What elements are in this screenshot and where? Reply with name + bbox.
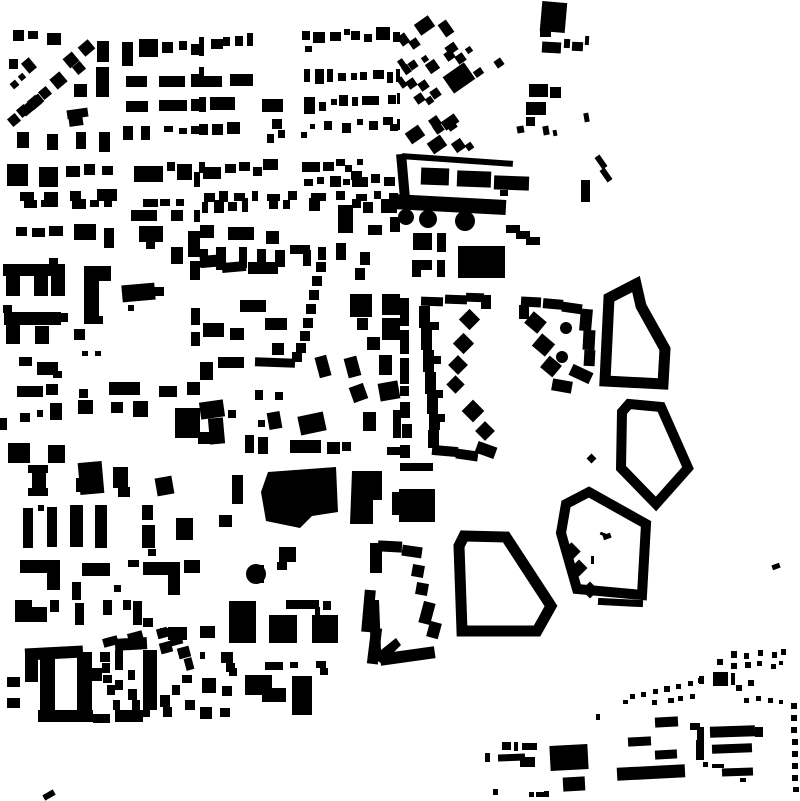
- building: [172, 685, 180, 695]
- building: [95, 351, 101, 356]
- building: [758, 650, 763, 656]
- building: [344, 29, 350, 35]
- building: [191, 99, 200, 111]
- building: [37, 410, 43, 417]
- building: [526, 237, 540, 245]
- building: [245, 435, 254, 453]
- building: [78, 39, 96, 57]
- building: [9, 59, 18, 69]
- building: [92, 668, 102, 681]
- building: [617, 764, 686, 781]
- building: [194, 210, 200, 222]
- building: [367, 337, 380, 350]
- building: [77, 652, 92, 710]
- building: [387, 72, 393, 83]
- courtyard-block-building: [605, 284, 665, 384]
- building: [20, 192, 34, 201]
- building: [75, 603, 84, 625]
- building: [200, 652, 205, 659]
- building: [542, 42, 562, 54]
- building: [457, 170, 492, 187]
- building: [419, 210, 437, 228]
- building: [352, 199, 361, 208]
- building: [462, 400, 485, 423]
- building: [221, 652, 233, 663]
- building: [360, 72, 367, 80]
- building: [544, 791, 549, 797]
- building: [302, 31, 310, 40]
- building: [744, 698, 749, 703]
- building: [696, 740, 704, 760]
- building: [678, 696, 683, 701]
- building: [318, 247, 326, 260]
- building: [412, 260, 432, 270]
- building: [72, 582, 81, 600]
- building: [60, 313, 68, 322]
- building: [771, 664, 776, 669]
- building: [199, 124, 208, 135]
- building: [445, 295, 467, 305]
- building: [84, 164, 95, 175]
- building: [7, 698, 20, 708]
- building: [304, 69, 310, 82]
- building: [756, 696, 761, 701]
- building: [736, 685, 742, 691]
- building: [176, 518, 193, 540]
- building: [49, 258, 58, 265]
- building: [275, 392, 283, 400]
- building: [262, 688, 286, 702]
- building: [583, 113, 589, 123]
- building: [187, 382, 200, 395]
- building: [104, 200, 112, 207]
- building: [99, 132, 110, 152]
- building: [697, 727, 704, 742]
- building: [465, 142, 475, 152]
- building: [388, 95, 396, 104]
- building: [309, 290, 319, 300]
- building: [128, 689, 137, 700]
- building: [364, 34, 372, 42]
- building: [123, 600, 131, 610]
- building: [297, 412, 326, 436]
- building: [176, 199, 184, 206]
- building: [374, 191, 381, 199]
- building: [600, 168, 613, 183]
- building: [102, 166, 113, 175]
- building: [253, 167, 262, 176]
- building: [286, 600, 319, 609]
- building: [199, 76, 222, 87]
- building: [400, 298, 409, 326]
- building: [519, 305, 529, 319]
- building: [78, 400, 93, 414]
- building: [16, 227, 27, 236]
- building: [212, 124, 223, 135]
- building: [688, 681, 693, 686]
- building: [421, 297, 443, 307]
- building: [630, 694, 635, 699]
- building: [159, 76, 185, 87]
- building: [7, 113, 21, 127]
- building: [390, 124, 398, 131]
- building: [357, 159, 363, 165]
- building: [10, 80, 20, 90]
- building: [722, 767, 753, 776]
- building: [143, 650, 157, 710]
- building: [152, 287, 164, 296]
- building: [768, 698, 773, 703]
- building: [277, 562, 287, 570]
- building: [19, 357, 32, 366]
- building: [357, 318, 368, 330]
- building: [549, 744, 588, 771]
- building: [301, 132, 307, 138]
- building: [400, 330, 409, 354]
- building: [278, 130, 285, 138]
- building: [242, 198, 248, 212]
- building: [96, 67, 109, 97]
- building: [455, 449, 478, 462]
- building: [296, 343, 306, 353]
- building: [42, 789, 55, 800]
- building: [397, 93, 400, 104]
- building: [323, 162, 334, 171]
- building: [139, 39, 158, 57]
- building: [0, 418, 7, 430]
- building: [133, 601, 142, 625]
- building: [47, 571, 60, 590]
- building: [128, 670, 135, 680]
- building: [115, 650, 123, 670]
- building: [131, 210, 157, 221]
- building: [3, 305, 12, 313]
- building: [316, 661, 326, 668]
- building: [97, 189, 117, 201]
- building: [436, 414, 445, 422]
- building: [171, 210, 183, 221]
- building: [202, 678, 216, 693]
- building: [199, 97, 206, 112]
- building: [520, 757, 535, 767]
- building: [159, 100, 187, 111]
- building: [4, 312, 61, 325]
- building: [228, 202, 237, 211]
- building: [623, 700, 628, 704]
- building: [628, 736, 651, 746]
- building: [419, 306, 430, 328]
- building: [352, 97, 358, 106]
- building: [128, 560, 139, 567]
- building: [384, 177, 395, 186]
- building: [451, 138, 466, 153]
- building: [222, 686, 232, 696]
- building: [220, 708, 230, 717]
- building: [40, 658, 55, 710]
- building: [401, 545, 422, 559]
- building: [536, 792, 544, 797]
- building: [397, 119, 400, 130]
- building: [400, 358, 409, 384]
- building: [443, 62, 476, 93]
- building: [47, 33, 61, 45]
- building: [109, 382, 140, 395]
- building: [740, 778, 746, 782]
- building: [342, 123, 351, 133]
- building: [392, 492, 400, 515]
- building: [330, 32, 341, 41]
- building: [459, 309, 480, 330]
- building: [28, 488, 48, 496]
- building: [20, 413, 30, 422]
- building: [400, 445, 410, 458]
- building: [104, 228, 114, 248]
- building: [339, 95, 348, 106]
- building: [542, 126, 549, 136]
- building: [143, 199, 158, 207]
- building: [572, 42, 583, 52]
- building: [376, 27, 390, 40]
- building: [82, 563, 110, 576]
- building: [266, 231, 279, 244]
- building: [182, 675, 192, 683]
- building: [432, 445, 459, 457]
- map-stage: [0, 0, 800, 801]
- building: [411, 564, 425, 578]
- building: [258, 420, 265, 427]
- building: [342, 442, 351, 451]
- building: [664, 686, 670, 692]
- building: [309, 198, 320, 211]
- building: [38, 710, 93, 722]
- building: [17, 132, 29, 148]
- building: [493, 57, 504, 68]
- building: [18, 73, 26, 81]
- building: [336, 159, 345, 166]
- building: [248, 262, 278, 274]
- building: [211, 39, 223, 49]
- courtyard-block-building: [561, 492, 646, 595]
- building: [792, 751, 798, 757]
- building: [415, 582, 429, 596]
- building: [781, 649, 786, 655]
- building: [44, 192, 58, 201]
- building: [74, 329, 85, 340]
- building: [563, 776, 586, 791]
- building: [368, 225, 382, 235]
- building: [454, 52, 467, 65]
- building: [304, 179, 313, 186]
- building: [7, 677, 20, 687]
- building: [344, 356, 362, 379]
- building: [312, 276, 322, 286]
- building: [320, 668, 328, 675]
- building: [473, 67, 484, 78]
- building: [123, 126, 133, 140]
- building: [313, 32, 325, 43]
- building: [28, 31, 38, 39]
- building: [382, 294, 400, 315]
- building: [228, 410, 236, 418]
- building: [194, 172, 200, 187]
- building: [500, 190, 508, 196]
- building: [39, 167, 58, 187]
- building: [791, 703, 797, 709]
- building: [453, 333, 474, 354]
- building: [228, 227, 254, 240]
- building: [421, 328, 432, 350]
- building: [438, 19, 455, 37]
- building: [267, 134, 274, 143]
- building: [185, 700, 195, 710]
- building: [437, 233, 446, 252]
- building: [362, 96, 379, 105]
- building: [300, 331, 310, 341]
- building: [179, 41, 187, 50]
- building: [225, 164, 236, 173]
- building: [405, 125, 426, 145]
- building: [421, 168, 450, 186]
- building: [522, 743, 537, 750]
- building: [200, 707, 212, 719]
- building: [402, 424, 412, 438]
- building: [115, 680, 123, 690]
- building: [230, 328, 244, 340]
- building: [314, 355, 331, 378]
- building: [288, 191, 297, 200]
- building: [690, 694, 695, 699]
- building: [118, 487, 130, 497]
- building: [302, 162, 320, 172]
- building: [417, 79, 430, 92]
- building: [200, 362, 213, 380]
- building: [713, 672, 728, 686]
- building: [160, 695, 170, 707]
- building: [188, 231, 200, 257]
- building: [171, 247, 183, 264]
- building: [100, 652, 110, 662]
- building: [402, 153, 513, 167]
- building: [413, 233, 432, 250]
- building: [579, 309, 593, 332]
- building: [160, 199, 170, 206]
- building: [203, 323, 224, 337]
- building: [596, 714, 600, 720]
- building: [699, 676, 704, 684]
- building: [556, 351, 568, 363]
- building: [399, 489, 435, 522]
- building: [102, 663, 110, 673]
- building: [262, 99, 283, 112]
- building: [167, 162, 175, 171]
- building: [122, 42, 133, 66]
- building: [255, 390, 263, 400]
- building: [703, 762, 708, 767]
- building: [526, 117, 535, 126]
- building: [32, 471, 46, 490]
- building: [126, 76, 147, 87]
- building: [229, 668, 237, 676]
- building: [219, 515, 232, 527]
- building: [475, 421, 495, 441]
- building: [49, 71, 67, 89]
- building: [25, 650, 38, 682]
- building: [532, 333, 555, 356]
- building: [791, 727, 797, 733]
- building: [771, 563, 780, 570]
- building: [265, 662, 283, 670]
- building: [229, 601, 256, 643]
- building: [369, 121, 378, 130]
- building: [72, 199, 86, 209]
- building: [283, 200, 290, 209]
- building: [47, 507, 57, 547]
- building: [550, 87, 561, 98]
- building: [330, 176, 341, 187]
- building: [179, 128, 187, 134]
- building: [133, 401, 148, 417]
- building: [543, 298, 564, 310]
- building: [31, 607, 47, 622]
- building: [15, 600, 32, 622]
- building: [46, 384, 58, 395]
- building: [232, 475, 243, 504]
- building: [381, 199, 397, 213]
- building: [551, 378, 573, 393]
- building: [148, 549, 156, 556]
- building: [465, 46, 473, 54]
- building: [21, 57, 37, 73]
- building: [203, 167, 221, 179]
- building: [191, 74, 200, 87]
- building: [434, 390, 443, 398]
- building: [357, 119, 363, 125]
- building: [107, 685, 115, 695]
- building: [564, 39, 570, 48]
- building: [184, 657, 195, 671]
- building: [553, 130, 558, 137]
- building: [128, 305, 134, 311]
- building: [717, 659, 723, 665]
- building: [184, 560, 200, 573]
- building: [561, 302, 582, 315]
- building: [13, 30, 24, 41]
- building: [529, 792, 534, 797]
- building: [199, 399, 225, 419]
- building: [336, 191, 345, 200]
- building: [493, 789, 498, 795]
- building: [267, 411, 283, 430]
- building: [317, 177, 324, 184]
- building: [355, 268, 365, 280]
- building: [731, 663, 737, 669]
- building: [755, 727, 763, 737]
- building: [240, 300, 266, 312]
- building: [175, 408, 200, 438]
- building: [655, 716, 678, 727]
- building: [74, 84, 87, 97]
- building: [76, 478, 86, 492]
- building: [430, 322, 439, 330]
- building: [383, 117, 393, 125]
- building: [516, 125, 524, 133]
- building: [143, 710, 150, 717]
- building: [41, 200, 58, 207]
- building: [261, 467, 338, 528]
- building: [331, 99, 337, 105]
- building: [121, 283, 155, 303]
- building: [113, 467, 128, 488]
